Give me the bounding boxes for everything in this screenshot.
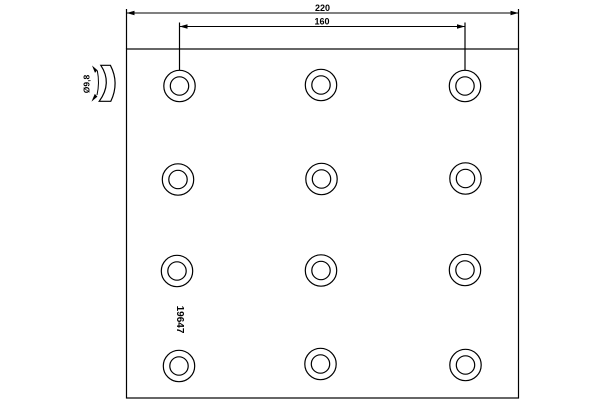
svg-text:Ø9,8: Ø9,8 [82, 75, 92, 94]
svg-text:19647: 19647 [174, 306, 185, 334]
svg-text:160: 160 [314, 17, 329, 27]
svg-text:220: 220 [315, 3, 330, 13]
